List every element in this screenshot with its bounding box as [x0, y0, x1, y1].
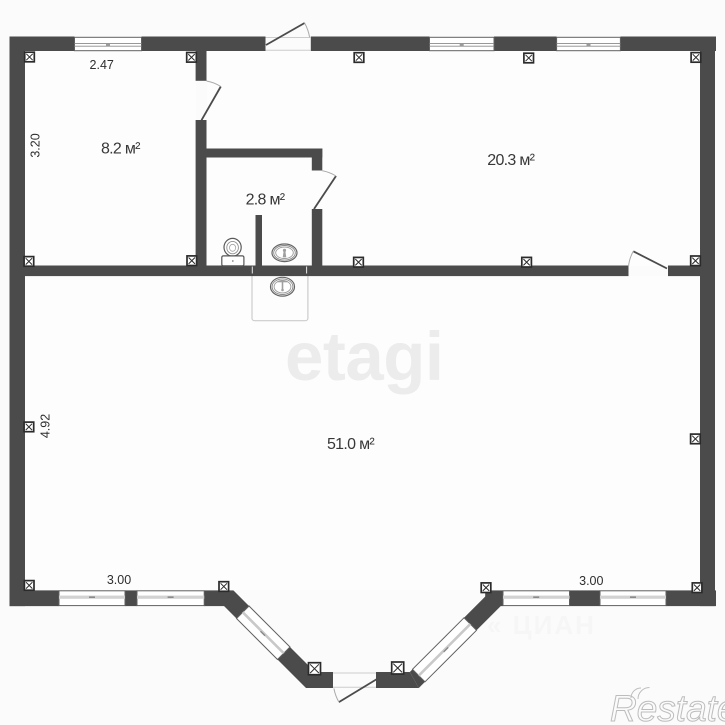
svg-text:3.20: 3.20 — [28, 133, 42, 157]
svg-text:4.92: 4.92 — [39, 414, 53, 438]
svg-text:3.00: 3.00 — [107, 573, 131, 587]
svg-text:51.0 м²: 51.0 м² — [327, 436, 375, 453]
svg-text:20.3 м²: 20.3 м² — [487, 152, 535, 169]
svg-text:3.00: 3.00 — [579, 574, 603, 588]
svg-text:2.8 м²: 2.8 м² — [246, 192, 286, 209]
svg-text:8.2 м²: 8.2 м² — [101, 141, 141, 158]
svg-text:« ЦИАН: « ЦИАН — [487, 610, 596, 640]
svg-text:Restate: Restate — [610, 688, 725, 725]
svg-text:etagi: etagi — [285, 318, 444, 395]
svg-text:2.47: 2.47 — [90, 58, 114, 72]
